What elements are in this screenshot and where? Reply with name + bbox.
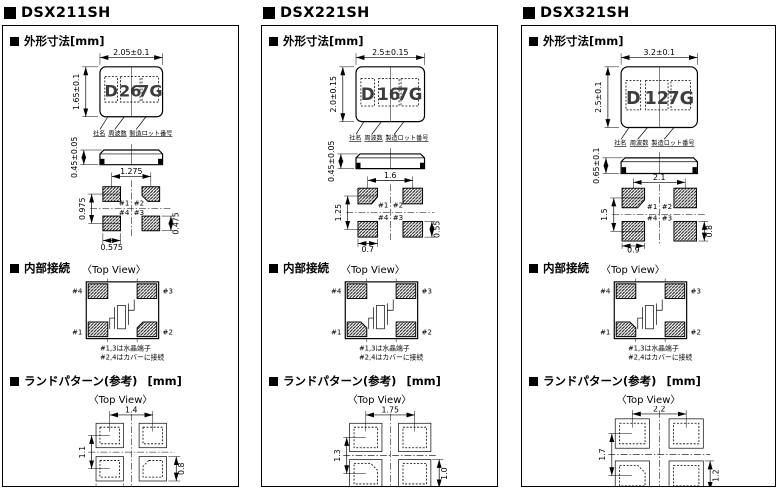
dim-pad-pitch-x: 1.275 [120,167,142,176]
marking-frequency: 12 [645,89,670,109]
pad-label-1: #1 [647,202,657,211]
title-square-icon [263,7,275,19]
crystal-symbol [369,299,393,328]
dim-pad-height: 0.475 [172,212,181,234]
connection-section-heading: 内部接続 〈Top View〉 [10,260,238,276]
section-square-icon [529,264,538,273]
pad-label-4: #4 [647,213,658,222]
dim-land-pitch-y: 1.1 [78,446,87,458]
outline-heading-text: 外形寸法[mm] [283,33,363,49]
section-square-icon [529,37,538,46]
outline-heading-text: 外形寸法[mm] [543,33,623,49]
dim-pad-pitch-x: 1.6 [384,171,396,180]
land-heading-unit: [mm] [147,374,181,388]
land-section-heading: ランドパターン(参考) [mm] [529,373,775,389]
section-square-icon [10,37,19,46]
dim-body-height: 2.0±0.15 [329,76,338,112]
dim-land-height: 1.2 [711,469,720,481]
pin-label-1: #1 [331,328,341,337]
marking-label-frequency: 周波数 [364,134,382,142]
outline-section-heading: 外形寸法[mm] [529,33,775,49]
marking-lot: 7G [667,89,694,109]
dim-pad-pitch-x: 2.1 [653,173,665,182]
dim-pad-height: 0.55 [433,221,442,238]
marking-label-lot: 製造ロット番号 [651,139,694,147]
connection-heading-text: 内部接続 [24,260,70,276]
land-pattern-drawing: 1.75 1.3 1.15 1.0 [265,406,494,487]
land-section-heading: ランドパターン(参考) [mm] [10,373,238,389]
connection-section-heading: 内部接続 〈Top View〉 [529,260,775,276]
corner-pad [396,284,416,299]
product-title-text: DSX211SH [21,5,111,21]
outline-section-heading: 外形寸法[mm] [269,33,497,49]
pad-label-3: #3 [393,213,403,222]
land-heading-unit: [mm] [666,374,700,388]
marking-label-frequency: 周波数 [630,139,648,147]
bottom-pad [674,188,697,208]
dim-body-width: 2.5±0.15 [372,49,408,57]
marking-label-lot: 製造ロット番号 [385,134,428,142]
pad-label-2: #2 [393,200,403,209]
outline-drawing: 3.2±0.1 2.5±0.1 D 12 7G 社名 周波数 製造ロット番号 0… [534,49,763,253]
land-pad-index [143,460,163,477]
marking-label-company: 社名 [614,139,626,147]
pin-label-1: #1 [72,328,82,337]
internal-connection-drawing: #4 #3 #1 #2 #1,3は水晶端子 #2,4はカバーに接続 [534,276,763,366]
bottom-pad [403,221,423,237]
pad-label-3: #3 [134,208,144,217]
dim-land-pitch-y: 1.3 [333,449,342,461]
product-panel: 外形寸法[mm] 3.2±0.1 2.5±0.1 D 12 [521,25,776,487]
marking-label-frequency: 周波数 [108,129,126,137]
pin-label-4: #4 [600,287,611,296]
pad-label-4: #4 [378,213,389,222]
top-view-label: 〈Top View〉 [522,391,775,406]
top-view-label: 〈Top View〉 [341,261,405,276]
marking-label-company: 社名 [349,134,361,142]
dim-body-height: 2.5±0.1 [594,81,603,112]
pin-label-2: #2 [691,328,701,337]
connection-note-2: #2,4はカバーに接続 [100,353,165,362]
corner-pad-index [137,322,157,337]
crystal-symbol [110,299,134,328]
section-square-icon [269,37,278,46]
bottom-pad-index [142,187,160,202]
product-panel: 外形寸法[mm] 2.5±0.15 2.0±0.15 D 1 [261,25,498,487]
land-pad [403,463,426,484]
pad-label-2: #2 [134,198,144,207]
land-pad [673,465,698,486]
dim-body-width: 2.05±0.1 [113,49,149,57]
marking-lot: 7G [397,85,422,104]
dim-body-thickness: 0.65±0.1 [592,147,601,183]
product-column-dsx221sh: DSX221SH 外形寸法[mm] 2.5±0.15 2.0±0.15 [259,0,518,488]
outline-section-heading: 外形寸法[mm] [10,33,238,49]
marking-company: D [626,89,641,109]
internal-connection-drawing: #4 #3 #1 #2 #1,3は水晶端子 #2,4はカバーに接続 [6,276,235,366]
corner-pad-index [347,322,367,337]
land-pattern-drawing: 2.2 1.7 1.4 1.2 [534,406,763,487]
dim-land-height: 1.0 [440,467,449,479]
connection-note-2: #2,4はカバーに接続 [359,353,424,362]
corner-pad [616,284,636,299]
outline-drawing: 2.5±0.15 2.0±0.15 D 16 7G 社名 周波数 製造ロット番号… [265,49,494,253]
dim-land-pitch-x: 1.4 [125,406,137,414]
corner-pad [665,322,685,337]
connection-note-2: #2,4はカバーに接続 [628,353,693,362]
dim-pad-pitch-y: 1.5 [600,208,609,220]
top-view-label: 〈Top View〉 [82,261,146,276]
marking-company: D [105,82,118,101]
product-title-text: DSX321SH [540,5,630,21]
pad-label-1: #1 [119,198,129,207]
top-view-label: 〈Top View〉 [601,261,665,276]
product-title-text: DSX221SH [280,5,370,21]
land-heading-text: ランドパターン(参考) [24,373,137,389]
corner-pad [665,284,685,299]
corner-pad [347,284,367,299]
dim-body-height: 1.65±0.1 [72,74,81,110]
pad-label-4: #4 [119,208,130,217]
section-square-icon [529,377,538,386]
marking-lot: 7G [138,82,162,101]
land-section-heading: ランドパターン(参考) [mm] [269,373,497,389]
land-pattern-drawing: 1.4 1.1 0.9 0.8 [6,406,235,487]
top-view-label: 〈Top View〉 [3,391,238,406]
product-panel: 外形寸法[mm] 2.05±0.1 1.65±0.1 D [2,25,239,487]
pad-label-1: #1 [378,200,388,209]
top-view-label: 〈Top View〉 [262,391,497,406]
corner-pad [137,284,157,299]
connection-heading-text: 内部接続 [283,260,329,276]
marking-label-company: 社名 [93,129,105,137]
dim-land-height: 0.8 [177,463,186,475]
internal-connection-drawing: #4 #3 #1 #2 #1,3は水晶端子 #2,4はカバーに接続 [265,276,494,366]
pad-label-3: #3 [662,213,672,222]
land-outline [615,461,649,487]
product-title: DSX321SH [519,0,778,23]
corner-pad [88,284,108,299]
outline-heading-text: 外形寸法[mm] [24,33,104,49]
marking-label-lot: 製造ロット番号 [129,129,172,137]
pin-label-2: #2 [422,328,432,337]
title-square-icon [523,7,535,19]
pin-label-2: #2 [163,328,173,337]
land-heading-text: ランドパターン(参考) [283,373,396,389]
connection-note-1: #1,3は水晶端子 [100,343,151,352]
product-title: DSX221SH [259,0,518,23]
bottom-pad [674,221,697,241]
bottom-pad [142,216,160,231]
pin-label-3: #3 [691,287,701,296]
connection-note-1: #1,3は水晶端子 [359,343,410,352]
corner-pad [88,322,108,337]
dim-pad-width: 0.7 [362,245,374,253]
section-square-icon [10,264,19,273]
dim-pad-pitch-y: 0.975 [78,198,87,220]
dim-body-width: 3.2±0.1 [644,49,675,57]
connection-heading-text: 内部接続 [543,260,589,276]
product-title: DSX211SH [0,0,259,23]
dim-body-thickness: 0.45±0.05 [327,141,336,182]
outline-drawing: 2.05±0.1 1.65±0.1 D 26 7G 社名 周波数 製造ロット番号 [6,49,235,253]
section-square-icon [269,377,278,386]
land-heading-text: ランドパターン(参考) [543,373,656,389]
dim-pad-width: 0.575 [101,243,123,252]
corner-pad-index [616,322,636,337]
land-outline [669,461,703,487]
dim-body-thickness: 0.45±0.05 [70,137,79,178]
corner-pad [396,322,416,337]
connection-section-heading: 内部接続 〈Top View〉 [269,260,497,276]
dim-land-pitch-y: 1.7 [598,448,607,460]
dim-pad-width: 0.9 [627,245,639,253]
pin-label-3: #3 [163,287,173,296]
dim-land-pitch-x: 2.2 [653,406,665,414]
crystal-symbol [638,299,662,328]
pin-label-1: #1 [600,328,610,337]
pin-label-4: #4 [331,287,342,296]
dim-land-pitch-x: 1.75 [382,406,399,414]
title-square-icon [4,7,16,19]
pin-label-3: #3 [422,287,432,296]
dim-pad-pitch-y: 1.25 [334,204,343,221]
dim-pad-height: 0.8 [705,225,714,237]
section-square-icon [10,377,19,386]
connection-note-1: #1,3は水晶端子 [628,343,679,352]
pad-label-2: #2 [662,202,672,211]
pin-label-4: #4 [72,287,83,296]
land-heading-unit: [mm] [406,374,440,388]
marking-company: D [361,85,375,104]
product-column-dsx211sh: DSX211SH 外形寸法[mm] 2.05±0.1 1.65±0.1 [0,0,259,488]
bottom-pad [403,188,423,204]
product-column-dsx321sh: DSX321SH 外形寸法[mm] 3.2±0.1 2.5±0.1 [519,0,778,488]
section-square-icon [269,264,278,273]
